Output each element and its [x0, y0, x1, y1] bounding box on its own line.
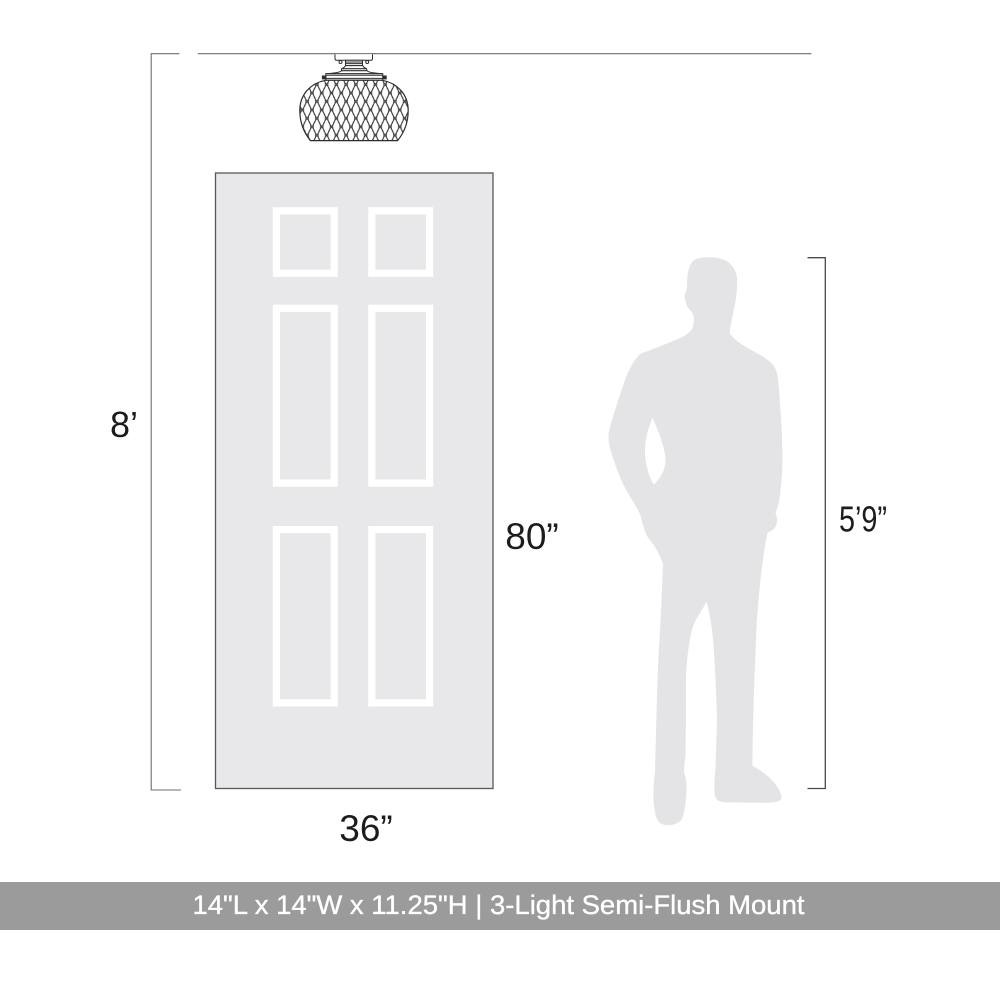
svg-text:8’: 8’: [110, 404, 138, 445]
svg-text:5’9”: 5’9”: [839, 499, 887, 540]
svg-text:36”: 36”: [339, 808, 392, 849]
svg-text:14"L x 14"W x 11.25"H | 3-Ligh: 14"L x 14"W x 11.25"H | 3-Light Semi-Flu…: [193, 890, 806, 920]
svg-text:80”: 80”: [505, 516, 558, 557]
